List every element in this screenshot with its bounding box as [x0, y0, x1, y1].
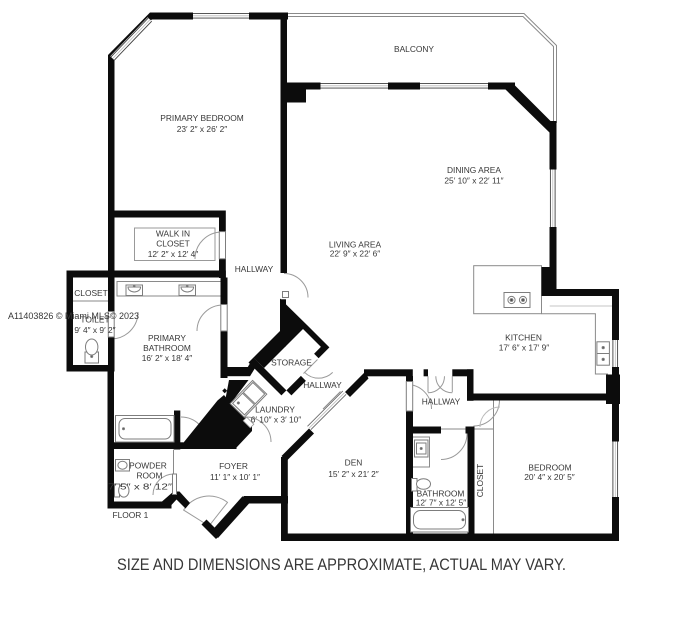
svg-text:CLOSET: CLOSET [475, 464, 485, 498]
svg-text:HALLWAY: HALLWAY [235, 264, 274, 274]
svg-text:ROOM: ROOM [136, 471, 162, 481]
svg-text:12′ 7″ x 12′ 5″: 12′ 7″ x 12′ 5″ [416, 498, 467, 508]
svg-text:BATHROOM: BATHROOM [143, 343, 191, 353]
svg-text:12′ 2″ x 12′ 4″: 12′ 2″ x 12′ 4″ [148, 249, 199, 259]
svg-text:11′ 1″ x 10′ 1″: 11′ 1″ x 10′ 1″ [210, 472, 260, 482]
svg-text:PRIMARY BEDROOM: PRIMARY BEDROOM [160, 113, 243, 123]
svg-text:7′ 5″ x 8′ 12″: 7′ 5″ x 8′ 12″ [108, 482, 172, 492]
svg-text:PRIMARY: PRIMARY [148, 333, 186, 343]
svg-text:22′ 9″ x 22′ 6″: 22′ 9″ x 22′ 6″ [330, 249, 381, 259]
svg-text:BEDROOM: BEDROOM [528, 463, 571, 473]
svg-text:20′ 4″ x 20′ 5″: 20′ 4″ x 20′ 5″ [524, 472, 575, 482]
svg-text:FOYER: FOYER [219, 461, 248, 471]
svg-text:CLOSET: CLOSET [74, 288, 108, 298]
svg-text:BALCONY: BALCONY [394, 44, 434, 54]
svg-text:FLOOR 1: FLOOR 1 [113, 510, 149, 520]
svg-text:KITCHEN: KITCHEN [505, 333, 542, 343]
svg-text:CLOSET: CLOSET [156, 239, 190, 249]
svg-text:25′ 10″ x 22′ 11″: 25′ 10″ x 22′ 11″ [444, 176, 503, 186]
svg-text:LAUNDRY: LAUNDRY [255, 405, 295, 415]
svg-text:23′ 2″ x 26′ 2″: 23′ 2″ x 26′ 2″ [177, 124, 228, 134]
svg-text:17′ 6″ x 17′ 9″: 17′ 6″ x 17′ 9″ [499, 343, 550, 353]
svg-text:POWDER: POWDER [129, 461, 167, 471]
svg-text:WALK IN: WALK IN [156, 229, 190, 239]
svg-text:HALLWAY: HALLWAY [303, 380, 342, 390]
svg-text:16′ 2″ x 18′ 4″: 16′ 2″ x 18′ 4″ [142, 353, 193, 363]
svg-text:A11403826 © Miami MLS© 2023: A11403826 © Miami MLS© 2023 [8, 311, 139, 321]
svg-text:STORAGE: STORAGE [271, 358, 312, 368]
svg-text:HALLWAY: HALLWAY [422, 397, 461, 407]
svg-text:DEN: DEN [345, 458, 363, 468]
svg-text:SIZE AND DIMENSIONS ARE APPROX: SIZE AND DIMENSIONS ARE APPROXIMATE, ACT… [117, 555, 566, 574]
svg-text:9′ 4″ x 9′ 2″: 9′ 4″ x 9′ 2″ [74, 325, 115, 335]
svg-text:6′ 10″ x 3′ 10″: 6′ 10″ x 3′ 10″ [251, 415, 302, 425]
svg-text:15′ 2″ x 21′ 2″: 15′ 2″ x 21′ 2″ [328, 469, 379, 479]
svg-text:DINING AREA: DINING AREA [447, 165, 501, 175]
